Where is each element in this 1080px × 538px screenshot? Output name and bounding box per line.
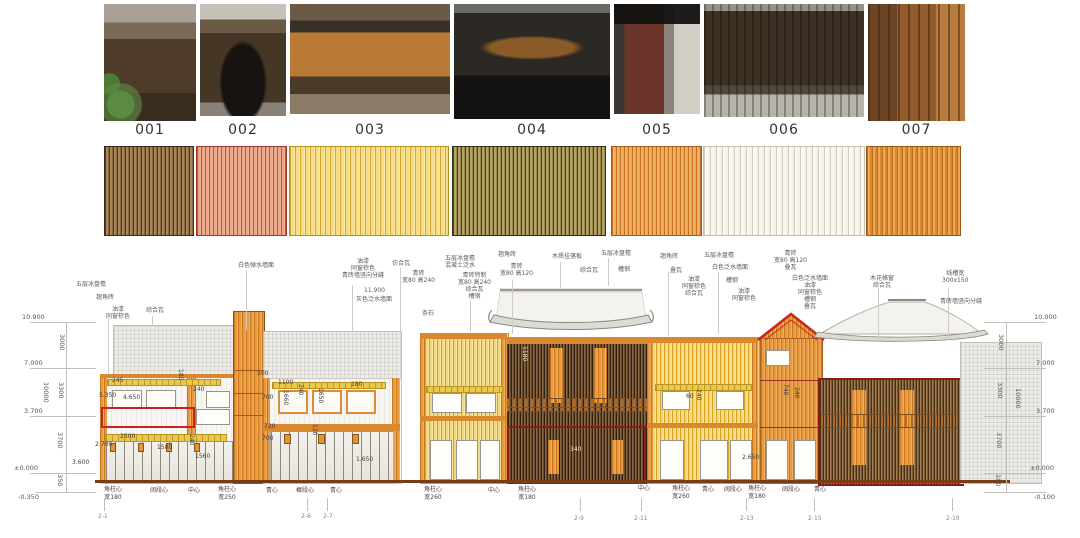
building4-window [466, 393, 496, 413]
annotation: 白色弹水墙面 [238, 262, 274, 269]
segment-dim: 3300 [57, 382, 65, 399]
leader-line [512, 280, 513, 334]
dimension: 1660 [282, 390, 289, 405]
column-label: 角柱心 宽260 [672, 485, 690, 500]
annotation: 仿合瓦 [392, 260, 410, 267]
dimension: 240 [695, 389, 702, 400]
dimension: 740 [782, 384, 789, 395]
annotation: 五层冰盘檐 [76, 281, 106, 288]
leader-line [560, 262, 561, 288]
building5-post [548, 440, 559, 474]
building6-window [716, 391, 744, 410]
building1-window [206, 391, 230, 408]
annotation: 综合瓦 [146, 307, 164, 314]
photo-003 [290, 4, 450, 114]
bracket [318, 434, 325, 444]
photo-002 [200, 4, 286, 116]
segment-dim: 3300 [996, 382, 1004, 399]
level-label: -0.100 [1034, 493, 1055, 501]
dimension: 1500 [157, 444, 172, 451]
grid-tick [641, 498, 642, 511]
annotation: 翘角砖 [660, 253, 678, 260]
level-label: 3.700 [1036, 407, 1055, 415]
dimension: 700 [262, 435, 273, 442]
annotation: 翘角砖 [96, 294, 114, 301]
photo-label: 006 [704, 122, 864, 138]
grid-tick [814, 498, 815, 511]
annotation: 槽钢 [726, 277, 738, 284]
dimension: 1180 [521, 346, 528, 361]
dimension: 1.650 [356, 456, 373, 463]
column-label: 中心 [188, 487, 200, 495]
photo-label: 001 [104, 122, 196, 138]
building6-band [647, 423, 758, 428]
building7-door [766, 440, 788, 480]
segment-dim: 3000 [58, 334, 66, 351]
column-label: 青心 [266, 487, 278, 495]
axis-line-left [66, 322, 67, 492]
photo-005 [614, 4, 700, 114]
photo-label: 004 [454, 122, 610, 138]
building5-cornice [507, 337, 647, 344]
level-label: -0.350 [18, 493, 39, 501]
building7-door [794, 440, 816, 480]
dimension: 60 [686, 393, 694, 400]
building1-beam-upper [107, 379, 221, 386]
grid-label: 2-19 [946, 515, 960, 522]
building9-wall [960, 342, 1042, 484]
ground-line [95, 480, 1010, 483]
building6-cornice [647, 337, 758, 343]
dimension: 500 [257, 370, 268, 377]
grid-label: 2-11 [634, 515, 648, 522]
column-label: 青心 [814, 486, 826, 494]
building1-panel [196, 409, 230, 425]
axis-tick [984, 368, 1046, 369]
annotation: 白色泛水墙面 油漆 同窗棕色 槽钢 叠瓦 [792, 275, 828, 310]
building6-door [660, 440, 684, 480]
building6-door [700, 440, 728, 480]
grid-tick [746, 498, 747, 511]
annotation: 叠瓦 [670, 267, 682, 274]
dimension: 1560 [195, 453, 210, 460]
building8-lattice-band [821, 414, 957, 428]
leader-line [470, 300, 471, 332]
annotation: 槽钢 [618, 266, 630, 273]
axis-tick [30, 368, 96, 369]
photo-001 [104, 4, 196, 121]
column-label: 角柱心 宽260 [424, 486, 442, 501]
leader-line [718, 272, 719, 334]
annotation: 青砖墙竖向分缝 [940, 298, 982, 305]
photo-label: 002 [200, 122, 286, 138]
color-swatch-007 [866, 146, 961, 236]
leader-line [352, 285, 353, 331]
axis-tick [36, 492, 96, 493]
segment-dim: 350 [56, 474, 64, 486]
leader-line [152, 316, 153, 326]
dimension: 180 [177, 369, 184, 380]
axis-tick [30, 416, 96, 417]
photo-006 [704, 4, 864, 117]
dimension: 5.350 [99, 392, 116, 399]
annotation: 翘角砖 [498, 251, 516, 258]
dimension: 180 [351, 381, 362, 388]
dimension: 1650 [317, 388, 324, 403]
dimension: 720 [264, 423, 275, 430]
building8-facade [818, 378, 964, 486]
leader-line [878, 288, 879, 340]
photo-label: 003 [290, 122, 450, 138]
column-label: 角柱心 宽180 [518, 486, 536, 501]
building4-band [420, 416, 507, 421]
building5-lattice-band [507, 398, 647, 412]
grid-label: 2-9 [574, 515, 584, 522]
building7-divider [760, 380, 821, 381]
color-swatch-001 [104, 146, 194, 236]
building6-pilaster-right [752, 343, 758, 482]
column-label: 阔段心 [724, 486, 742, 494]
grid-tick [952, 498, 953, 511]
axis-tick [30, 322, 96, 323]
building5-post [550, 348, 563, 403]
highlight-zone [507, 426, 646, 483]
photo-004 [454, 4, 610, 119]
level-label: 10.900 [22, 313, 45, 321]
building3-band [263, 424, 400, 431]
dimension: 340 [570, 446, 581, 453]
annotation: 青砖 宽80 高120 [500, 263, 533, 277]
dimension: 245 [112, 377, 123, 384]
grid-label: 2-6 [301, 513, 311, 520]
building5-post [594, 348, 607, 403]
column-label: 阔段心 [150, 487, 168, 495]
segment-dim: 3700 [995, 432, 1003, 449]
segment-dim: 3000 [997, 334, 1005, 351]
highlight-line [507, 407, 647, 408]
building6-beam [655, 384, 752, 391]
leader-line [668, 272, 669, 336]
dimension: 2.700 [95, 441, 112, 448]
building5-post [612, 440, 623, 474]
axis-tick [984, 416, 1046, 417]
annotation: 木质挂落板 [552, 253, 582, 260]
color-swatch-004 [452, 146, 606, 236]
grid-tick [580, 498, 581, 511]
axis-line-right [1006, 322, 1007, 492]
bracket [352, 434, 359, 444]
building4-pilaster-left [420, 339, 426, 482]
building3-parapet [263, 331, 402, 380]
annotation: 综合瓦 [580, 267, 598, 274]
dimension: 240 [188, 434, 195, 445]
dimension: 3.600 [72, 459, 89, 466]
annotation: 五层冰盘檐 混凝土泛水 [445, 255, 475, 269]
grid-tick [327, 498, 328, 511]
annotation: 青砖 宽80 高120 叠瓦 [774, 250, 807, 271]
dimension: 120 [311, 424, 318, 435]
photo-label: 005 [614, 122, 700, 138]
level-label: 7.000 [24, 359, 43, 367]
total-dim: 10000 [1014, 388, 1022, 409]
annotation: 油漆 同窗棕色 综合瓦 [682, 276, 706, 297]
dimension: 240 [193, 386, 204, 393]
total-dim: 10000 [42, 382, 50, 403]
segment-dim: 100 [994, 474, 1002, 486]
tower-divider [233, 415, 263, 416]
segment-dim: 3700 [56, 432, 64, 449]
annotation: 青砖 宽80 高240 [402, 270, 435, 284]
dimension: 700 [262, 394, 273, 401]
design-sheet: 001 002 003 004 005 006 007 [0, 0, 1080, 538]
dimension: 4.650 [123, 394, 140, 401]
color-swatch-006 [703, 146, 865, 236]
annotation: 油漆 同窗棕色 [106, 306, 130, 320]
annotation: 条石 [422, 310, 434, 317]
column-label: 青心 [330, 487, 342, 495]
grid-label: 2-15 [808, 515, 822, 522]
dimension: 2.650 [742, 454, 759, 461]
dimension: 240 [793, 387, 800, 398]
level-label: ±0.000 [14, 464, 38, 472]
leader-line [400, 268, 401, 332]
column-label: 樨段心 [296, 487, 314, 495]
column-label: 中心 [488, 487, 500, 495]
tower-divider [233, 393, 263, 394]
building4-door [480, 440, 500, 480]
level-label: 3.700 [24, 407, 43, 415]
annotation: 五层冰盘檐 [704, 252, 734, 259]
bracket [284, 434, 291, 444]
level-label: ±0.000 [1030, 464, 1054, 472]
building7-window [766, 350, 790, 366]
bracket [138, 443, 144, 452]
grid-label: 2-1 [98, 513, 108, 520]
annotation: 青砖特制 宽80 高240 综合瓦 槽钢 [458, 272, 491, 300]
column-label: 角柱心 宽180 [748, 485, 766, 500]
building3-window [346, 390, 376, 414]
grid-label: 2-7 [323, 513, 333, 520]
annotation: 油漆 同窗棕色 [732, 288, 756, 302]
building4-door [456, 440, 478, 480]
annotation-level: 11.900 [364, 287, 385, 294]
axis-tick [984, 322, 1046, 323]
column-label: 角柱心 宽180 [104, 486, 122, 501]
color-swatch-003 [289, 146, 449, 236]
annotation: 线槽宽 300x150 [942, 270, 968, 284]
color-swatch-002 [196, 146, 287, 236]
annotation: 木花格窗 综合瓦 [870, 275, 894, 289]
column-label: 中心 [638, 485, 650, 493]
building1-parapet [113, 325, 235, 376]
highlight-box [101, 407, 195, 428]
photo-label: 007 [868, 122, 965, 138]
grid-tick [307, 498, 308, 511]
annotation: 五层冰盘檐 [601, 250, 631, 257]
dimension: 2500 [120, 433, 135, 440]
building4-window [432, 393, 462, 413]
leader-line [608, 258, 609, 286]
dimension: 240 [297, 384, 304, 395]
building6-pilaster-left [647, 343, 653, 482]
column-label: 青心 [702, 486, 714, 494]
column-label: 阔段心 [782, 486, 800, 494]
color-swatch-005 [611, 146, 702, 236]
annotation: 灰色泛水墙面 [356, 296, 392, 303]
level-label: 10.000 [1034, 313, 1057, 321]
tower-louvre [233, 311, 265, 484]
annotation: 油漆 同窗棕色 青砖墙竖向分缝 [342, 258, 384, 279]
grid-tick [104, 498, 105, 511]
annotation: 白色泛水墙面 [712, 264, 748, 271]
dimension: 1100 [278, 379, 293, 386]
leader-line [108, 318, 109, 374]
grid-label: 2-13 [740, 515, 754, 522]
leader-line [246, 270, 247, 330]
leader-line [948, 288, 949, 340]
level-label: 7.000 [1036, 359, 1055, 367]
column-label: 角柱心 宽250 [218, 486, 236, 501]
photo-007 [868, 4, 965, 121]
building4-door [430, 440, 452, 480]
building7-divider [760, 427, 821, 428]
building4-beam [426, 386, 503, 393]
